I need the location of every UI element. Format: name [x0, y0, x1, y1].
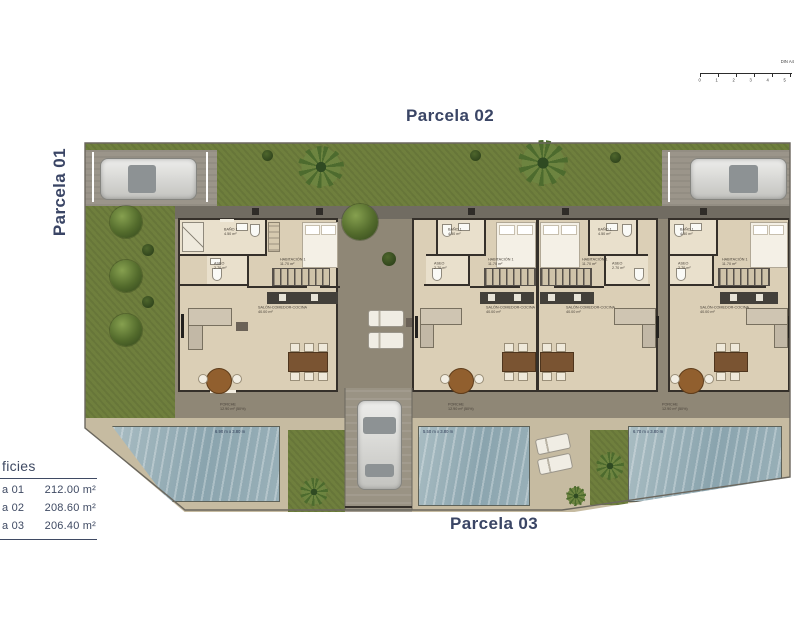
- parcela-02-title: Parcela 02: [406, 106, 494, 126]
- tree: [110, 206, 142, 238]
- sun-lounger: [368, 332, 404, 349]
- shower: [182, 222, 204, 252]
- staircase: [540, 268, 592, 286]
- pool-dimensions-label: 5.50 m x 3.80 m: [423, 430, 453, 434]
- pillow: [305, 225, 320, 235]
- pool-dimensions-label: 6.70 m x 3.80 m: [633, 430, 663, 434]
- wall: [180, 284, 249, 286]
- wall: [636, 220, 638, 256]
- chair: [518, 372, 528, 381]
- terrace-table: [206, 368, 232, 394]
- chair: [504, 372, 514, 381]
- porche-label: PORCHE12.90 m² (50%): [220, 403, 246, 412]
- terrace-chair: [440, 374, 450, 384]
- room-label-bano: BAÑO 14.50 m²: [448, 228, 462, 237]
- pillow: [321, 225, 336, 235]
- cooktop: [574, 294, 581, 301]
- room-label-salon: SALÓN-COMEDOR-COCINA40.00 m²: [566, 306, 615, 315]
- staircase: [272, 268, 330, 286]
- tree: [342, 204, 378, 240]
- sofa: [746, 308, 788, 325]
- scale-number: 1: [716, 79, 718, 83]
- car-driveway: [357, 400, 402, 490]
- area-value: 208.60 m²: [45, 502, 96, 514]
- wall: [554, 286, 604, 288]
- scale-tick: [772, 74, 773, 77]
- parking-line: [92, 152, 94, 202]
- car-windshield: [729, 165, 758, 194]
- toilet: [250, 224, 260, 237]
- wall: [588, 254, 648, 256]
- room-label-aseo: ASEO2.70 m²: [434, 262, 447, 271]
- scale-tick: [700, 74, 701, 77]
- table-rule: [0, 478, 97, 479]
- room-label-habitacion: HABITACIÓN 111.70 m²: [280, 258, 306, 267]
- sink: [730, 294, 737, 301]
- chair: [542, 372, 552, 381]
- room-label-habitacion: HABITACIÓN 111.70 m²: [488, 258, 514, 267]
- scale-tick: [790, 74, 791, 77]
- area-value: 206.40 m²: [45, 520, 96, 532]
- scale-tick: [736, 74, 737, 77]
- room-label-aseo: ASEO2.70 m²: [214, 262, 227, 271]
- parking-line: [206, 152, 208, 202]
- villa-parcela-03: BAÑO 14.50 m² ASEO2.70 m² HABITACIÓN 111…: [668, 218, 790, 392]
- areas-table-header: ficies: [0, 458, 100, 474]
- terrace-chair: [704, 374, 714, 384]
- toilet: [634, 268, 644, 281]
- cooktop: [756, 294, 763, 301]
- palm-tree: [298, 146, 344, 188]
- chair: [318, 372, 328, 381]
- sink: [488, 294, 495, 301]
- wall: [468, 256, 470, 286]
- wall: [247, 286, 307, 288]
- villa-duplex-parcela-02: BAÑO 14.50 m² ASEO2.70 m² HABITACIÓN 111…: [412, 218, 658, 392]
- bush: [382, 252, 396, 266]
- terrace-table: [448, 368, 474, 394]
- chair: [542, 343, 552, 352]
- bed: [540, 222, 580, 268]
- villa-parcela-01: BAÑO 14.50 m² ASEO2.70 m² HABITACIÓN 111…: [178, 218, 338, 392]
- scale-number: 4: [766, 79, 768, 83]
- wall: [716, 220, 718, 256]
- chair: [716, 343, 726, 352]
- site-plan-canvas: 6.90 m x 3.80 m 5.50 m x 3.80 m 6.70 m x…: [0, 0, 800, 640]
- palm-plant: [596, 452, 624, 480]
- wall: [712, 256, 714, 286]
- room-label-salon: SALÓN-COMEDOR-COCINA40.00 m²: [258, 306, 307, 315]
- room-label-habitacion: HABITACIÓN 111.70 m²: [582, 258, 608, 267]
- room-label-habitacion: HABITACIÓN 111.70 m²: [722, 258, 748, 267]
- sofa: [614, 308, 656, 325]
- chair: [290, 372, 300, 381]
- parking-line: [668, 152, 670, 202]
- areas-table: ficies a 01 212.00 m² a 02 208.60 m² a 0…: [0, 458, 100, 542]
- chair: [730, 343, 740, 352]
- tree: [110, 314, 142, 346]
- chair: [556, 372, 566, 381]
- equipment-box: [316, 208, 323, 215]
- wall: [670, 284, 714, 286]
- scale-number: 5: [783, 79, 785, 83]
- bed: [750, 222, 788, 268]
- sofa: [420, 308, 462, 325]
- chair: [518, 343, 528, 352]
- tv: [415, 316, 418, 338]
- palm-plant: [566, 486, 586, 506]
- room-label-aseo: ASEO2.70 m²: [612, 262, 625, 271]
- chair: [304, 372, 314, 381]
- wall: [604, 284, 650, 286]
- terrace-chair: [670, 374, 680, 384]
- bed: [302, 222, 338, 268]
- chair: [716, 372, 726, 381]
- porche-label: PORCHE12.90 m² (50%): [448, 403, 474, 412]
- kitchen-counter: [720, 292, 778, 304]
- scale-tick: [754, 74, 755, 77]
- party-wall: [536, 220, 539, 390]
- sink: [548, 294, 555, 301]
- wall: [265, 220, 267, 256]
- pool-dimensions-label: 6.90 m x 3.80 m: [215, 430, 245, 434]
- staircase: [718, 268, 770, 286]
- dining-table: [288, 352, 328, 372]
- chair: [730, 372, 740, 381]
- dining-table: [540, 352, 574, 372]
- sofa: [188, 308, 232, 326]
- wall: [320, 286, 340, 288]
- wall: [247, 254, 249, 286]
- parcela-01-title: Parcela 01: [50, 148, 70, 236]
- bush: [262, 150, 273, 161]
- bush: [610, 152, 621, 163]
- chair: [556, 343, 566, 352]
- wall: [588, 220, 590, 256]
- kitchen-counter: [540, 292, 594, 304]
- tv: [181, 314, 184, 338]
- scale-bar: DIN A4 0 1 2 3 4 5: [700, 60, 792, 90]
- car-rear-window: [365, 464, 394, 476]
- room-label-bano: BAÑO 14.50 m²: [598, 228, 612, 237]
- table-row: a 01 212.00 m²: [0, 481, 100, 499]
- cooktop: [514, 294, 521, 301]
- room-label-salon: SALÓN-COMEDOR-COCINA40.00 m²: [486, 306, 535, 315]
- pillow: [753, 225, 768, 235]
- sun-lounger: [368, 310, 404, 327]
- pillow: [499, 225, 515, 235]
- chair: [318, 343, 328, 352]
- scale-number: 0: [699, 79, 701, 83]
- parcela-03-title: Parcela 03: [450, 514, 538, 534]
- area-label: a 03: [2, 520, 24, 532]
- chair: [504, 343, 514, 352]
- table-row: a 02 208.60 m²: [0, 499, 100, 517]
- tree: [110, 260, 142, 292]
- chair: [304, 343, 314, 352]
- car-windshield: [363, 417, 396, 435]
- pool-parcela-02: [418, 426, 530, 506]
- palm-tree: [518, 140, 568, 186]
- porche-label: PORCHE12.90 m² (50%): [662, 403, 688, 412]
- bush: [470, 150, 481, 161]
- scale-number: 3: [749, 79, 751, 83]
- kitchen-counter: [480, 292, 534, 304]
- car-windshield: [128, 165, 157, 194]
- sink: [236, 223, 248, 231]
- pillow: [561, 225, 577, 235]
- room-label-bano: BAÑO 14.50 m²: [680, 228, 694, 237]
- wall: [670, 254, 718, 256]
- terrace-chair: [474, 374, 484, 384]
- wall: [426, 254, 486, 256]
- wardrobe: [268, 222, 280, 252]
- room-label-salon: SALÓN-COMEDOR-COCINA40.00 m²: [700, 306, 749, 315]
- table-rule: [0, 539, 97, 540]
- coffee-table: [236, 322, 248, 331]
- room-label-bano: BAÑO 14.50 m²: [224, 228, 238, 237]
- pillow: [543, 225, 559, 235]
- area-label: a 02: [2, 502, 24, 514]
- sink: [279, 294, 286, 301]
- dining-table: [502, 352, 536, 372]
- area-value: 212.00 m²: [45, 484, 96, 496]
- bush: [142, 244, 154, 256]
- equipment-box: [700, 208, 707, 215]
- terrace-chair: [232, 374, 242, 384]
- equipment-box: [252, 208, 259, 215]
- car-top-left: [100, 158, 197, 200]
- window-opening: [220, 219, 234, 222]
- area-label: a 01: [2, 484, 24, 496]
- scale-numbers: 0 1 2 3 4 5: [698, 78, 786, 84]
- wall: [424, 284, 470, 286]
- scale-bar-label: DIN A4: [781, 60, 794, 64]
- toilet: [622, 224, 632, 237]
- chair: [290, 343, 300, 352]
- room-label-aseo: ASEO2.70 m²: [678, 262, 691, 271]
- wall: [436, 220, 438, 256]
- table-row: a 03 206.40 m²: [0, 517, 100, 535]
- wall: [714, 286, 766, 288]
- palm-plant: [300, 478, 328, 506]
- bush: [142, 296, 154, 308]
- car-top-right: [690, 158, 787, 200]
- terrace-chair: [198, 374, 208, 384]
- staircase: [484, 268, 536, 286]
- wall: [484, 220, 486, 256]
- tv: [656, 316, 659, 338]
- scale-tick: [718, 74, 719, 77]
- scale-bar-line: [700, 73, 792, 74]
- scale-number: 2: [733, 79, 735, 83]
- wall: [180, 254, 267, 256]
- wall: [470, 286, 520, 288]
- pillow: [769, 225, 784, 235]
- equipment-box: [468, 208, 475, 215]
- pillow: [517, 225, 533, 235]
- cooktop: [311, 294, 318, 301]
- equipment-box: [562, 208, 569, 215]
- dining-table: [714, 352, 748, 372]
- kitchen-counter: [267, 292, 338, 304]
- terrace-table: [678, 368, 704, 394]
